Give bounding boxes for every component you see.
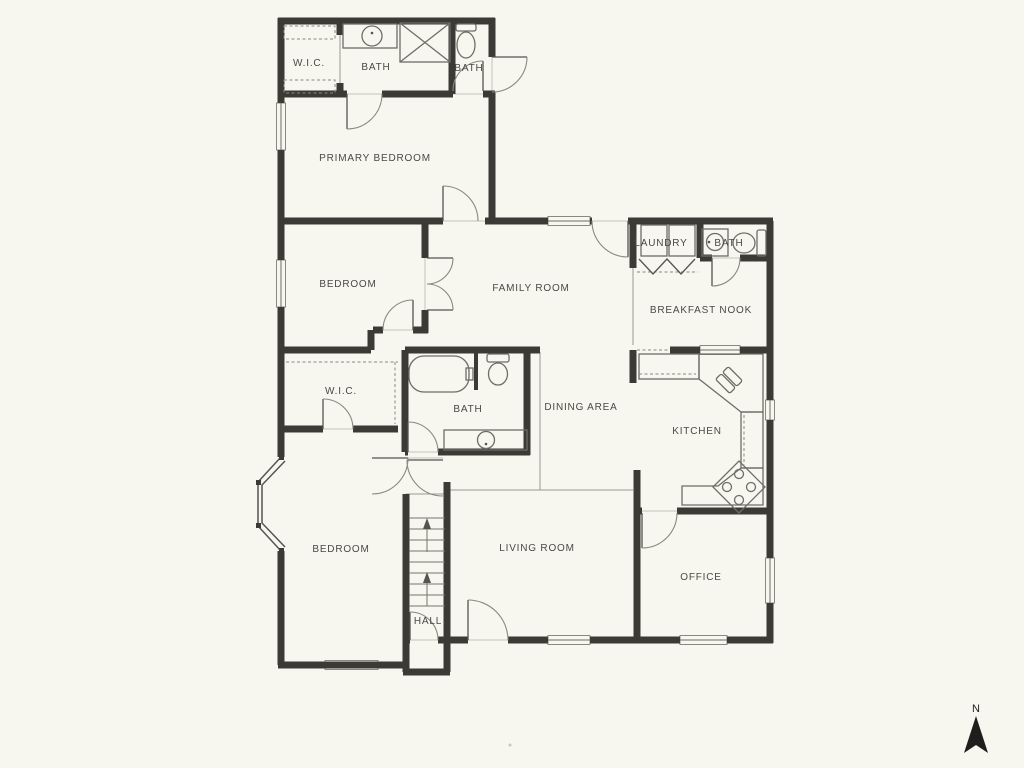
- room-label-wic-middle: W.I.C.: [325, 386, 357, 397]
- window: [548, 217, 590, 226]
- door-exterior: [592, 221, 628, 257]
- kitchen-sink-icon: [716, 367, 743, 394]
- watermark-dot: [509, 744, 512, 747]
- floor-plan-drawing: W.I.C. BATH BATH PRIMARY BEDROOM BEDROOM…: [0, 0, 1024, 768]
- door: [443, 186, 478, 221]
- room-label-primary-bedroom: PRIMARY BEDROOM: [319, 153, 431, 164]
- room-label-hall: HALL: [414, 616, 442, 627]
- door-front: [468, 600, 508, 640]
- french-doors: [427, 258, 453, 310]
- room-label-laundry: LAUNDRY: [634, 238, 687, 249]
- room-label-living-room: LIVING ROOM: [499, 543, 574, 554]
- door: [408, 422, 438, 452]
- window: [277, 103, 286, 150]
- door: [347, 94, 382, 129]
- door: [323, 399, 353, 429]
- door: [383, 300, 413, 330]
- window: [277, 260, 286, 307]
- room-label-wic-top: W.I.C.: [293, 58, 325, 69]
- window: [680, 636, 727, 645]
- compass: N: [964, 703, 988, 753]
- floor-plan-canvas: W.I.C. BATH BATH PRIMARY BEDROOM BEDROOM…: [0, 0, 1024, 768]
- room-label-bath-nook: BATH: [714, 238, 743, 249]
- door: [712, 258, 740, 286]
- door: [642, 513, 677, 548]
- shower-icon: [400, 23, 450, 62]
- window: [766, 400, 775, 420]
- bay-window: [256, 455, 285, 553]
- room-label-bath-middle: BATH: [453, 404, 482, 415]
- door-exterior: [492, 57, 527, 92]
- window: [700, 346, 740, 355]
- room-label-family-room: FAMILY ROOM: [492, 283, 569, 294]
- double-doors: [372, 458, 443, 496]
- room-label-breakfast-nook: BREAKFAST NOOK: [650, 305, 752, 316]
- room-label-dining-area: DINING AREA: [544, 402, 617, 413]
- toilet-icon: [456, 24, 476, 58]
- room-label-kitchen: KITCHEN: [672, 426, 722, 437]
- room-label-office: OFFICE: [680, 572, 721, 583]
- vanity-sink-icon: [343, 24, 397, 48]
- compass-label: N: [972, 703, 980, 715]
- window: [766, 558, 775, 603]
- room-label-bath-primary: BATH: [361, 62, 390, 73]
- room-label-bath-top-right: BATH: [454, 63, 483, 74]
- north-arrow-icon: [964, 716, 988, 753]
- room-labels: W.I.C. BATH BATH PRIMARY BEDROOM BEDROOM…: [293, 58, 752, 627]
- window: [548, 636, 590, 645]
- room-label-bedroom-middle: BEDROOM: [319, 279, 376, 290]
- bathtub-icon: [409, 356, 473, 392]
- room-label-bedroom-bottom: BEDROOM: [312, 544, 369, 555]
- toilet-icon: [487, 354, 509, 385]
- stairs: [409, 518, 445, 606]
- vanity-sink-icon: [444, 430, 527, 450]
